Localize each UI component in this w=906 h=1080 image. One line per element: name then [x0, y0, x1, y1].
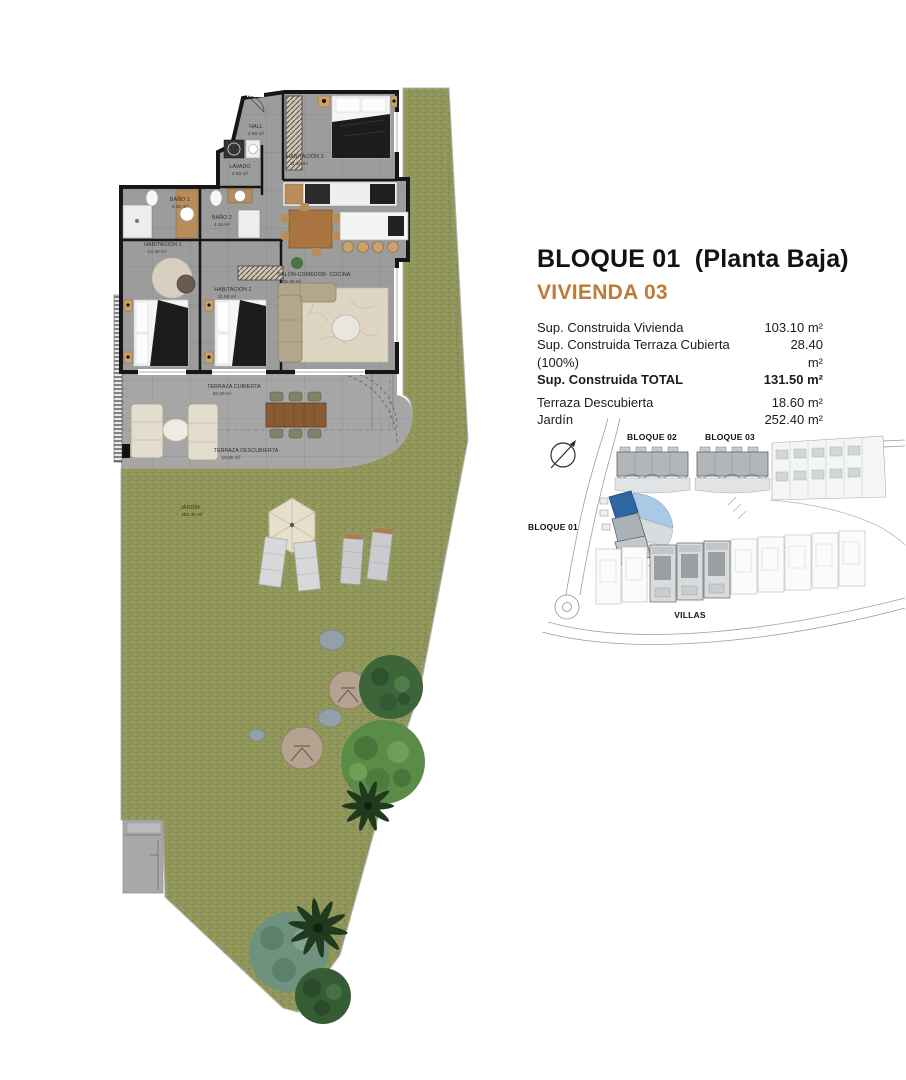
outdoor-chair: [308, 392, 321, 401]
chair: [300, 203, 309, 211]
garden-paved-pad: [123, 820, 163, 893]
label-bloque-03: BLOQUE 03: [705, 432, 755, 442]
area-value: 252.40 m²: [764, 411, 823, 429]
area-row-total: Sup. Construida TOTAL 131.50 m²: [537, 371, 823, 389]
page: { "header": { "title": "BLOQUE 01 (Plant…: [0, 0, 906, 1080]
fridge: [370, 184, 395, 204]
building-bloque-02: [615, 447, 690, 493]
svg-text:252.40 m²: 252.40 m²: [181, 512, 203, 518]
stool: [388, 242, 399, 253]
area-row: Sup. Construida Vivienda 103.10 m²: [537, 319, 823, 337]
label-bloque-02: BLOQUE 02: [627, 432, 677, 442]
neighbor-parcels: [772, 436, 886, 500]
room-label-terraza-descubierta: TERRAZA DESCUBIERTA: [214, 448, 279, 454]
coffee-table: [332, 315, 360, 341]
sun-lounger: [294, 541, 321, 591]
stool: [343, 242, 354, 253]
site-plan: BLOQUE 02 BLOQUE 03 BLOQUE 01 VILLAS: [520, 418, 906, 646]
outdoor-chair: [270, 429, 283, 438]
roundabout: [555, 595, 579, 619]
page-title: BLOQUE 01 (Planta Baja): [537, 246, 837, 274]
svg-text:35.40 m²: 35.40 m²: [283, 279, 302, 285]
outdoor-sofa: [131, 404, 163, 458]
plant: [291, 257, 303, 269]
chair: [332, 214, 340, 223]
area-row: Jardín 252.40 m²: [537, 411, 823, 429]
svg-text:2.60 m²: 2.60 m²: [248, 131, 265, 137]
area-row: Terraza Descubierta 18.60 m²: [537, 394, 823, 412]
shower-2: [238, 210, 260, 238]
svg-text:4.60 m²: 4.60 m²: [172, 204, 189, 210]
outdoor-chair: [308, 429, 321, 438]
wardrobe-2: [238, 266, 283, 280]
sun-lounger: [340, 533, 363, 584]
chair: [281, 231, 289, 240]
room-label-lavado: LAVADO: [229, 164, 250, 170]
compass-icon: [551, 440, 576, 468]
toilet-1: [146, 190, 158, 206]
room-label-habitacion-3: HABITACIÓN 3: [286, 153, 323, 160]
room-label-jardin: JARDÍN: [180, 504, 200, 511]
area-label: Terraza Descubierta: [537, 394, 653, 412]
outdoor-dining-table: [266, 403, 326, 427]
chair: [312, 248, 321, 256]
svg-text:4.15 m²: 4.15 m²: [214, 222, 231, 228]
room-label-hall: HALL: [249, 124, 263, 130]
room-label-habitacion-1: HABITACIÓN 1: [144, 241, 181, 248]
room-label-salon: SALÓN-COMEDOR- COCINA: [278, 271, 351, 278]
room-label-bano-2: BAÑO 2: [212, 214, 232, 221]
chair: [281, 214, 289, 223]
area-value: 28.40 m²: [772, 336, 823, 371]
stool: [373, 242, 384, 253]
areas-table: Sup. Construida Vivienda 103.10 m² Sup. …: [537, 319, 823, 429]
sofa: [278, 295, 302, 362]
chair: [332, 231, 340, 240]
tree: [359, 655, 423, 719]
ottoman: [249, 729, 265, 741]
svg-text:11.50 m²: 11.50 m²: [218, 294, 237, 300]
toilet-2: [210, 190, 222, 206]
room-label-bano-1: BAÑO 1: [170, 196, 190, 203]
outdoor-chair: [270, 392, 283, 401]
ottoman: [319, 630, 345, 650]
label-villas: VILLAS: [674, 610, 706, 620]
tree: [341, 720, 425, 804]
area-value: 131.50 m²: [764, 371, 823, 389]
area-label: Sup. Construida Vivienda: [537, 319, 683, 337]
vivienda-subtitle: VIVIENDA 03: [537, 281, 837, 305]
svg-text:2.50 m²: 2.50 m²: [232, 171, 249, 177]
building-bloque-03: [695, 447, 770, 493]
area-label: Jardín: [537, 411, 573, 429]
stool: [358, 242, 369, 253]
outdoor-chair: [289, 392, 302, 401]
room-label-habitacion-2: HABITACIÓN 2: [214, 286, 251, 293]
area-label: Sup. Construida Terraza Cubierta (100%): [537, 336, 772, 371]
area-value: 18.60 m²: [772, 394, 823, 412]
side-table: [163, 419, 189, 441]
cooktop: [305, 184, 330, 204]
svg-text:11.10 m²: 11.10 m²: [290, 161, 309, 167]
svg-text:13.40 m²: 13.40 m²: [148, 249, 167, 255]
room-label-terraza-cubierta: TERRAZA CUBIERTA: [207, 384, 261, 390]
svg-text:28.40 m²: 28.40 m²: [213, 391, 232, 397]
svg-text:18.60 m²: 18.60 m²: [222, 455, 241, 461]
dining-table: [289, 210, 332, 248]
area-label: Sup. Construida TOTAL: [537, 371, 683, 389]
armchair: [177, 275, 195, 293]
info-panel: BLOQUE 01 (Planta Baja) VIVIENDA 03 Sup.…: [537, 246, 837, 429]
area-value: 103.10 m²: [764, 319, 823, 337]
outdoor-chair: [289, 429, 302, 438]
floor-plan: HALL 2.60 m² LAVADO 2.50 m² HABITACIÓN 3…: [100, 80, 480, 1025]
area-row: Sup. Construida Terraza Cubierta (100%) …: [537, 336, 823, 371]
ottoman: [318, 709, 342, 727]
tree: [295, 968, 351, 1024]
label-bloque-01: BLOQUE 01: [528, 522, 578, 532]
